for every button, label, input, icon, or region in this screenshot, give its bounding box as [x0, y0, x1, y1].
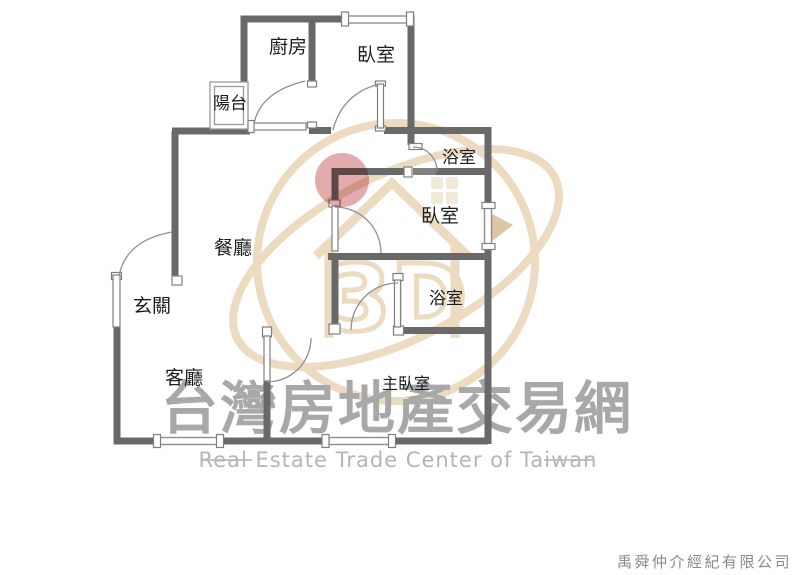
entry-door-arc	[119, 232, 172, 276]
entry-door-leaf	[113, 275, 120, 327]
bathroom-lower-door-leaf	[395, 280, 401, 327]
room-label-master-bedroom: 主臥室	[382, 374, 430, 393]
kitchen-door-leaf	[253, 123, 306, 130]
logo-house-windows	[431, 177, 458, 204]
floorplan-drawing: 3D 台灣房地產交易網 Real Estate Trade Center of …	[0, 0, 797, 575]
room-label-balcony: 陽台	[213, 94, 247, 114]
room-label-kitchen: 廚房	[269, 35, 307, 58]
room-label-bedroom-top: 臥室	[357, 44, 395, 66]
bathroom-upper-door-leaf	[413, 168, 436, 175]
room-label-living: 客廳	[165, 367, 203, 389]
room-label-entry: 玄關	[133, 295, 171, 317]
bedroom-top-door-leaf	[378, 84, 384, 128]
agency-name: 禹舜仲介經紀有限公司	[617, 554, 792, 571]
watermark-subtitle: Real Estate Trade Center of Taiwan	[199, 448, 598, 472]
bedroom-middle-door-leaf	[332, 206, 338, 251]
room-label-bathroom-upper: 浴室	[442, 148, 476, 168]
highlight-marker	[315, 153, 369, 207]
kitchen-door-arc	[254, 81, 305, 124]
room-label-dining: 餐廳	[214, 237, 252, 259]
window-top	[345, 16, 407, 23]
room-label-bedroom-middle: 臥室	[421, 205, 459, 227]
window-bottom-left	[157, 438, 217, 445]
floorplan-page: 3D 台灣房地產交易網 Real Estate Trade Center of …	[0, 0, 797, 575]
window-bottom-right	[329, 438, 389, 445]
room-label-bathroom-lower: 浴室	[429, 289, 463, 309]
window-right	[485, 207, 492, 247]
master-door-leaf	[264, 336, 270, 381]
